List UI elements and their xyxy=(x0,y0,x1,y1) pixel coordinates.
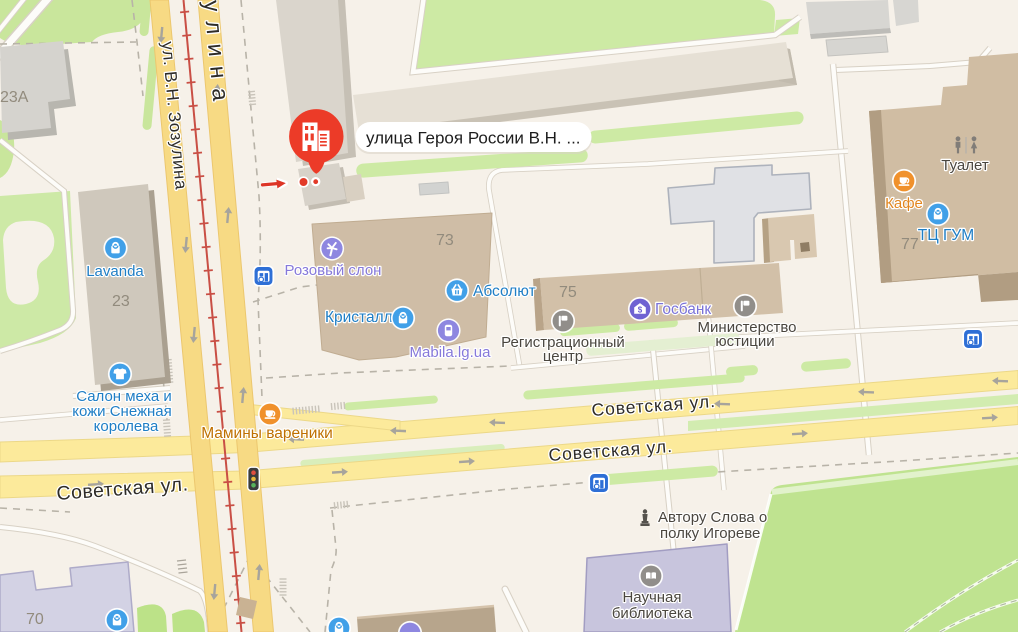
svg-text:77: 77 xyxy=(901,236,919,253)
svg-text:73: 73 xyxy=(436,232,454,249)
svg-text:Научная: Научная xyxy=(622,589,681,606)
svg-text:Mabila.lg.ua: Mabila.lg.ua xyxy=(410,344,492,361)
svg-text:Туалет: Туалет xyxy=(941,157,989,174)
svg-text:ТЦ ГУМ: ТЦ ГУМ xyxy=(918,227,974,244)
svg-text:юстиции: юстиции xyxy=(715,333,774,350)
svg-text:Автору Слова о: Автору Слова о xyxy=(658,509,767,526)
svg-text:Абсолют: Абсолют xyxy=(473,283,536,300)
svg-text:центр: центр xyxy=(543,348,583,365)
svg-text:75: 75 xyxy=(559,284,577,301)
svg-text:Госбанк: Госбанк xyxy=(655,301,711,318)
svg-text:улица Героя России В.Н. ...: улица Героя России В.Н. ... xyxy=(366,129,581,148)
svg-text:Lavanda: Lavanda xyxy=(86,263,144,280)
svg-text:королева: королева xyxy=(94,418,159,435)
svg-text:23: 23 xyxy=(112,293,130,310)
svg-text:70: 70 xyxy=(26,611,44,628)
svg-text:Розовый слон: Розовый слон xyxy=(285,262,382,279)
svg-text:23А: 23А xyxy=(0,89,29,106)
svg-text:Мамины вареники: Мамины вареники xyxy=(201,425,333,442)
svg-text:библиотека: библиотека xyxy=(612,605,693,622)
svg-text:Кафе: Кафе xyxy=(885,195,923,212)
svg-text:полку Игореве: полку Игореве xyxy=(660,525,760,542)
svg-text:Кристалл: Кристалл xyxy=(325,309,393,326)
